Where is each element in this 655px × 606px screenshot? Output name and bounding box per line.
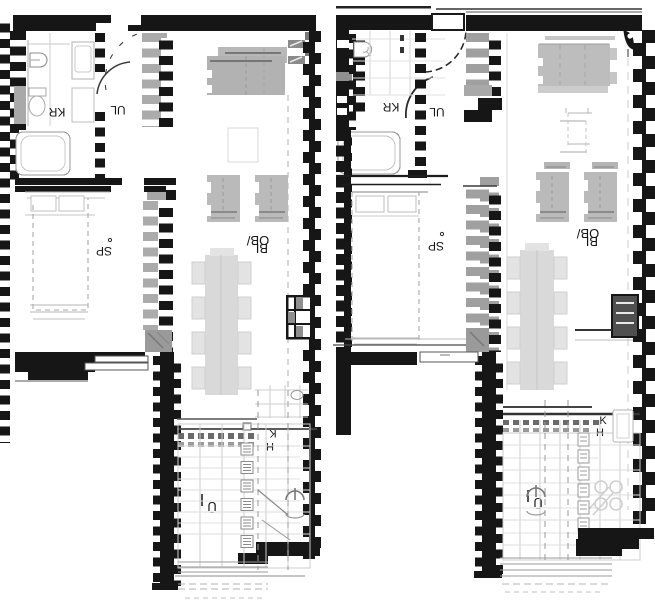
svg-text:BL: BL	[582, 234, 598, 249]
svg-text:KR: KR	[382, 100, 399, 114]
svg-text:KR: KR	[48, 105, 65, 119]
svg-text:UL: UL	[110, 103, 126, 117]
svg-text:SP: SP	[428, 239, 444, 253]
svg-text:SP: SP	[96, 244, 112, 258]
svg-text:UL: UL	[429, 105, 445, 119]
svg-text:K: K	[599, 415, 607, 427]
svg-text:BL: BL	[252, 241, 268, 256]
